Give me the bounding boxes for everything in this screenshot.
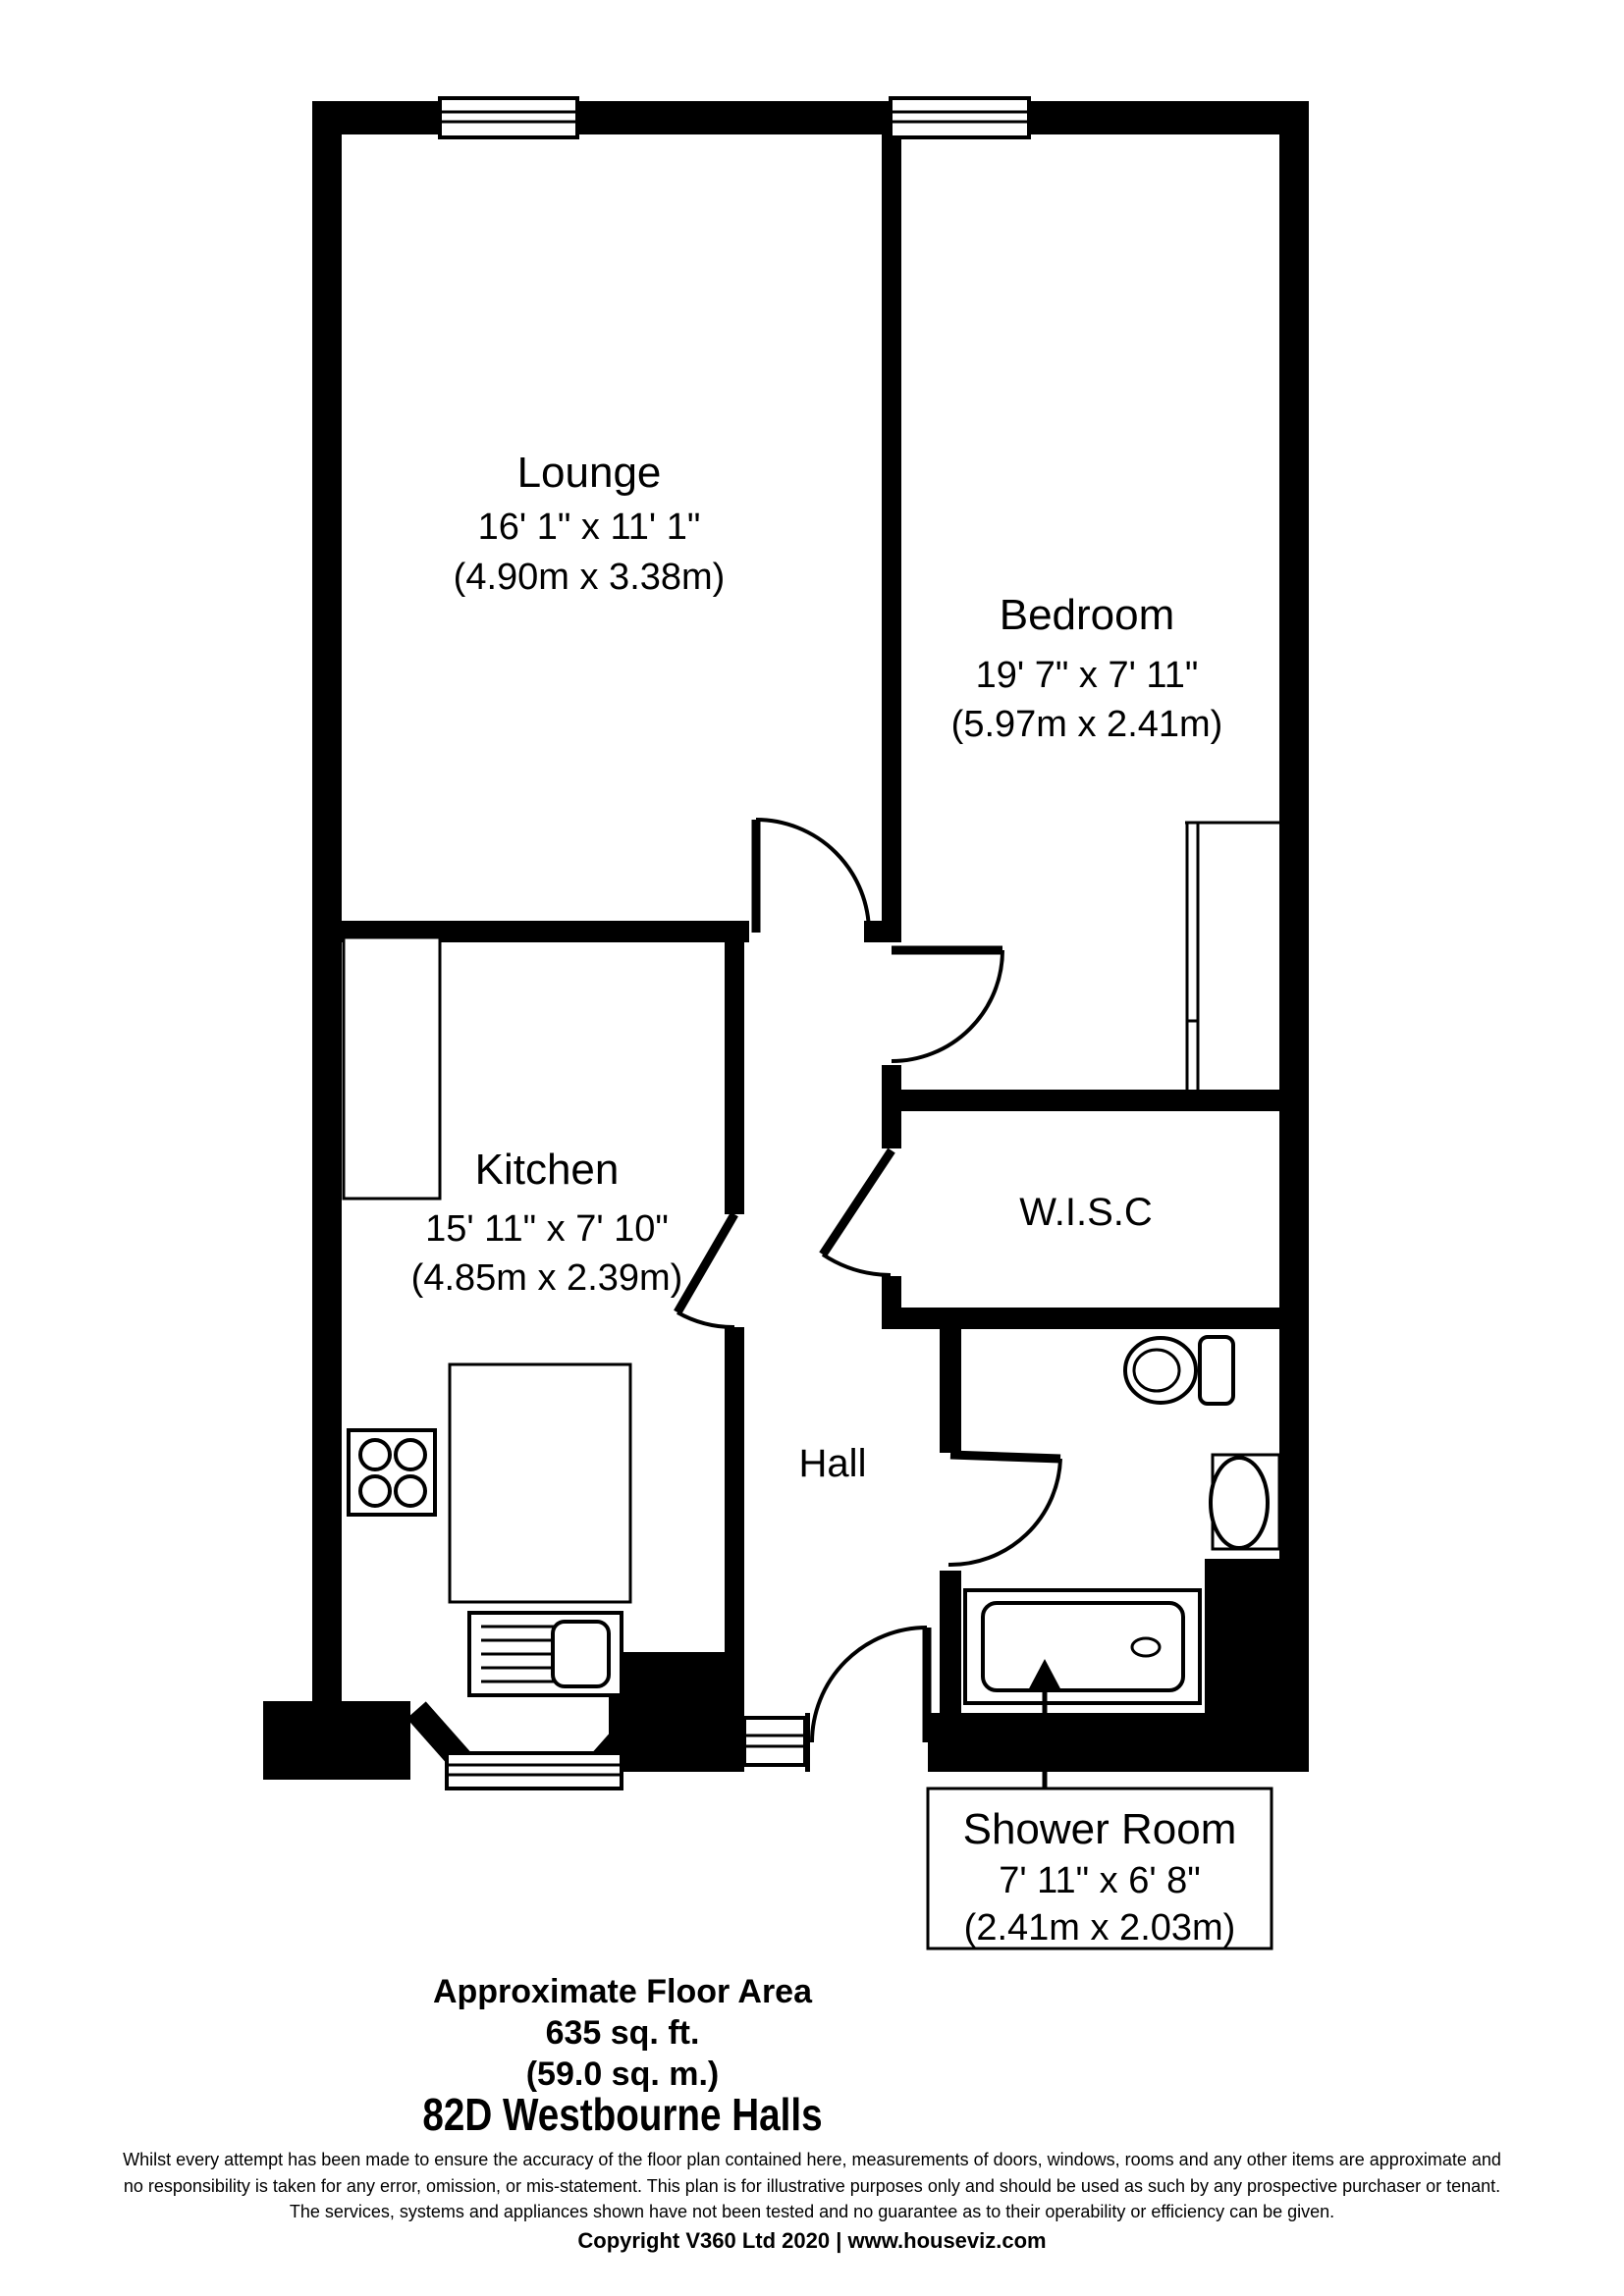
room-labels: Lounge 16' 1" x 11' 1" (4.90m x 3.38m) B…	[411, 449, 1223, 1485]
bedroom-dim-m: (5.97m x 2.41m)	[951, 704, 1223, 745]
kitchen-counter-left	[344, 937, 440, 1199]
lounge-dim-ft: 16' 1" x 11' 1"	[478, 507, 701, 548]
area-sqft: 635 sq. ft.	[546, 2014, 700, 2052]
wall-wisc-bottom	[882, 1308, 1279, 1329]
footer: Approximate Floor Area 635 sq. ft. (59.0…	[422, 1973, 822, 2140]
disclaimer-line3: The services, systems and appliances sho…	[290, 2202, 1334, 2221]
shower-dim-m: (2.41m x 2.03m)	[964, 1907, 1236, 1949]
shower-label: Shower Room	[963, 1805, 1237, 1853]
shower-room-door	[948, 1455, 1060, 1565]
basin	[1211, 1455, 1279, 1549]
fixtures	[344, 823, 1279, 1789]
kitchen-dim-m: (4.85m x 2.39m)	[411, 1257, 683, 1299]
kitchen-dim-ft: 15' 11" x 7' 10"	[425, 1208, 669, 1250]
wall-lounge-bedroom-divider	[882, 134, 901, 942]
bedroom-label: Bedroom	[1000, 591, 1175, 639]
wall-kitchen-hall-lower	[725, 1327, 744, 1652]
wall-kitchen-hall-upper	[725, 921, 744, 1214]
wall-wisc-left-upper	[882, 1065, 901, 1148]
lounge-window	[440, 98, 577, 137]
wall-right	[1279, 101, 1309, 1772]
wisc-label: W.I.S.C	[1019, 1191, 1153, 1234]
wall-bottom-kitchen	[263, 1701, 410, 1780]
disclaimer: Whilst every attempt has been made to en…	[123, 2150, 1501, 2253]
bedroom-dim-ft: 19' 7" x 7' 11"	[976, 655, 1199, 696]
kitchen-door	[677, 1214, 734, 1327]
kitchen-sink	[469, 1613, 622, 1695]
wisc-door	[823, 1150, 892, 1275]
shower-room-label-box: Shower Room 7' 11" x 6' 8" (2.41m x 2.03…	[928, 1789, 1272, 1949]
kitchen-counter-peninsula	[450, 1364, 630, 1602]
hall-window	[744, 1718, 805, 1765]
area-title: Approximate Floor Area	[433, 1973, 813, 2010]
shower-tray	[965, 1590, 1200, 1703]
wall-shower-left-upper	[940, 1329, 961, 1453]
wall-left	[312, 101, 342, 1772]
disclaimer-line1: Whilst every attempt has been made to en…	[123, 2150, 1501, 2169]
wall-bottom-mid	[656, 1701, 744, 1772]
disclaimer-line2: no responsibility is taken for any error…	[124, 2176, 1500, 2196]
bedroom-door	[892, 950, 1002, 1061]
hall-label: Hall	[799, 1442, 867, 1485]
wall-bottom-right	[928, 1713, 1309, 1772]
toilet	[1125, 1337, 1233, 1404]
wall-shower-corner	[1205, 1559, 1279, 1713]
wall-shower-left-lower	[940, 1571, 961, 1713]
property-address: 82D Westbourne Halls	[422, 2090, 822, 2140]
kitchen-bay-window	[447, 1753, 622, 1789]
bedroom-window	[891, 98, 1029, 137]
kitchen-label: Kitchen	[475, 1146, 620, 1194]
wall-wisc-top	[901, 1090, 1279, 1111]
lounge-label: Lounge	[517, 449, 662, 497]
wall-wisc-left-lower	[882, 1276, 901, 1308]
lounge-door	[756, 820, 869, 933]
floor-plan: Lounge 16' 1" x 11' 1" (4.90m x 3.38m) B…	[0, 0, 1624, 2296]
kitchen-hob	[349, 1430, 435, 1515]
shower-dim-ft: 7' 11" x 6' 8"	[999, 1860, 1201, 1901]
lounge-dim-m: (4.90m x 3.38m)	[454, 557, 726, 598]
bedroom-wardrobe	[1185, 823, 1279, 1090]
copyright-line: Copyright V360 Ltd 2020 | www.houseviz.c…	[577, 2228, 1046, 2253]
entrance-door	[812, 1628, 927, 1742]
area-sqm: (59.0 sq. m.)	[526, 2056, 720, 2093]
